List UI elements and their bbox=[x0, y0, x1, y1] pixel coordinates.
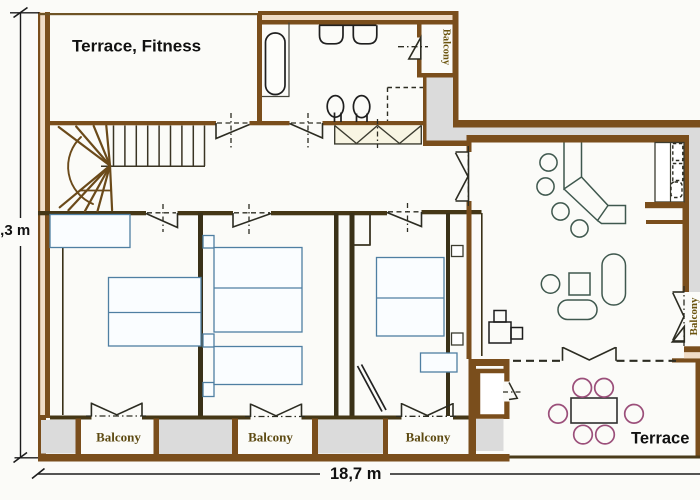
svg-text:Terrace, Fitness: Terrace, Fitness bbox=[72, 37, 201, 56]
svg-text:Balcony: Balcony bbox=[96, 430, 141, 445]
svg-text:Balcony: Balcony bbox=[406, 430, 451, 445]
svg-text:18,7 m: 18,7 m bbox=[330, 465, 381, 483]
svg-text:Balcony: Balcony bbox=[441, 29, 452, 66]
svg-text:12,3 m: 12,3 m bbox=[0, 222, 30, 239]
svg-text:Terrace: Terrace bbox=[631, 430, 689, 448]
svg-text:Balcony: Balcony bbox=[688, 297, 700, 335]
svg-text:Balcony: Balcony bbox=[248, 430, 293, 445]
